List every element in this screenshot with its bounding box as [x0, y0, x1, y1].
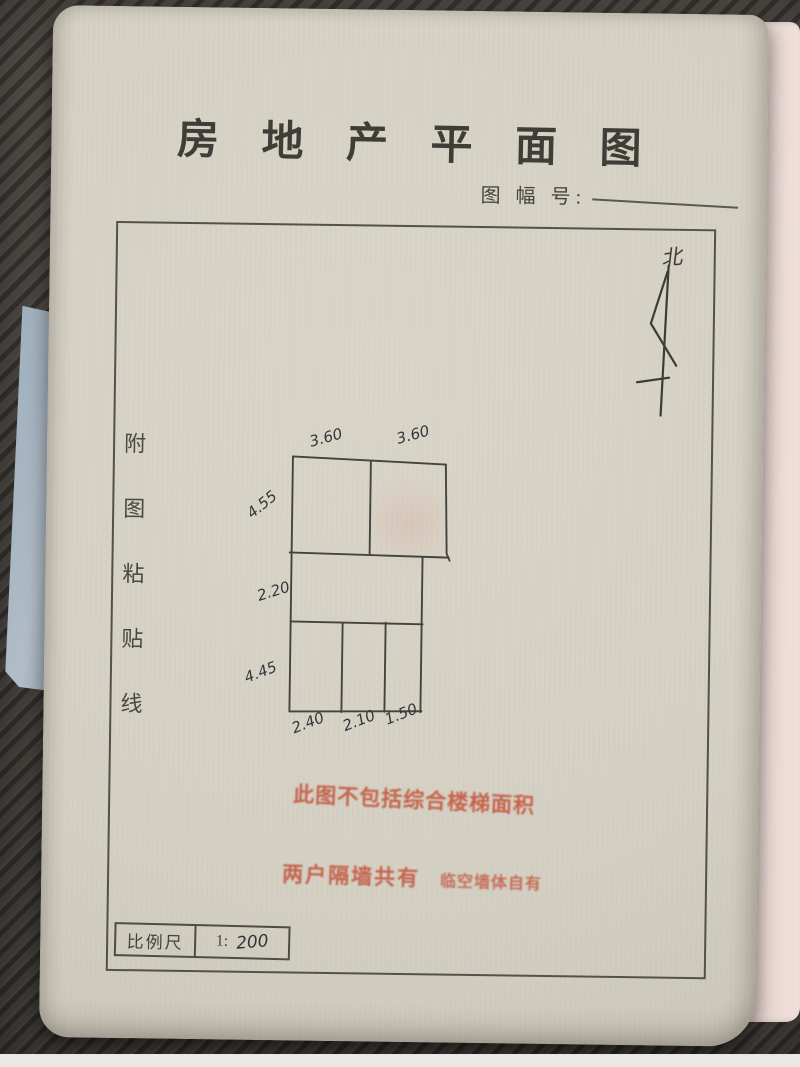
hand-drawn-floor-plan: 3.60 3.60 4.55 2.20 4.45 2.40 2.10 1.50: [239, 415, 484, 748]
dim-bottom-1: 2.40: [289, 708, 327, 737]
plan-lower-divider-1: [341, 623, 342, 712]
plan-upper-right-wall: [445, 465, 451, 561]
paste-line-char: 线: [120, 686, 142, 718]
plan-upper-left-wall: [292, 456, 293, 552]
dim-top-1: 3.60: [307, 424, 344, 450]
plan-lower-left-wall: [289, 621, 290, 711]
plan-top-wall: [293, 456, 446, 464]
drawing-frame-border: 北 附 图 粘 贴 线: [106, 221, 716, 979]
paste-line-char: 贴: [121, 621, 143, 653]
document-page: 房 地 产 平 面 图 图 幅 号: 北 附 图 粘 贴 线: [39, 5, 769, 1047]
sheet-number-row: 图 幅 号:: [480, 179, 738, 212]
stamp-shared-wall-text: 两户隔墙共有: [282, 862, 421, 890]
dim-left-2: 2.20: [255, 578, 292, 605]
north-arrow-cross-tick: [637, 377, 669, 382]
photo-bottom-edge: [0, 1054, 800, 1067]
scale-value-cell: 1: 200: [194, 926, 289, 958]
plan-top-divider-wall: [370, 461, 371, 554]
plan-lower-divider-2: [384, 623, 385, 712]
red-stamp-wall-ownership: 两户隔墙共有 临空墙体自有: [282, 858, 543, 896]
scale-handwritten-value: 200: [235, 931, 269, 954]
paste-line-char: 附: [124, 426, 146, 458]
photo-of-floorplan-document: 房 地 产 平 面 图 图 幅 号: 北 附 图 粘 贴 线: [0, 0, 800, 1067]
north-arrow: 北: [620, 238, 718, 434]
plan-middle-left-wall: [291, 552, 292, 621]
paste-line-vertical-label: 附 图 粘 贴 线: [120, 426, 146, 718]
scale-table: 比例尺 1: 200: [114, 922, 291, 960]
plan-lower-right-wall: [420, 623, 421, 712]
page-title: 房 地 产 平 面 图: [51, 103, 768, 179]
red-stamp-area-note: 此图不包括综合楼梯面积: [293, 778, 536, 820]
plan-middle-bottom-wall: [291, 621, 423, 624]
dim-left-3: 4.45: [242, 658, 280, 687]
sheet-number-label: 图 幅 号:: [480, 185, 586, 208]
stamp-own-wall-text: 临空墙体自有: [440, 873, 542, 893]
paste-line-char: 图: [123, 491, 145, 523]
dim-bottom-2: 2.10: [340, 706, 378, 735]
scale-prefix: 1:: [216, 933, 229, 951]
dim-left-1: 4.55: [243, 487, 280, 522]
paste-line-char: 粘: [122, 556, 144, 588]
plan-middle-right-wall: [422, 557, 423, 623]
dim-top-2: 3.60: [394, 422, 431, 448]
dim-bottom-3: 1.50: [382, 700, 420, 729]
sheet-number-blank-line: [592, 182, 739, 208]
scale-label: 比例尺: [116, 924, 195, 956]
north-label: 北: [660, 245, 687, 271]
